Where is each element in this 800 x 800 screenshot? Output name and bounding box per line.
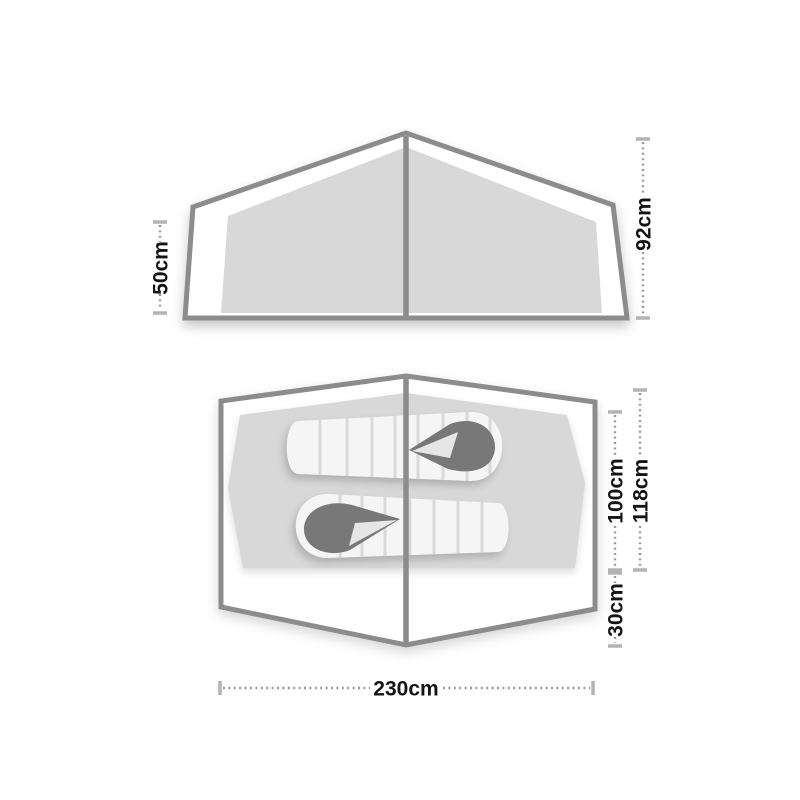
dimension-inner-depth: 100cm	[605, 412, 628, 570]
dimension-label-peak-height: 92cm	[633, 197, 656, 251]
dimension-side-height: 50cm	[150, 222, 173, 313]
dimension-peak-height: 92cm	[633, 139, 656, 318]
dimension-label-porch-depth: 30cm	[605, 583, 628, 637]
tent-dimension-diagram: 50cm 92cm	[0, 0, 800, 800]
dimension-label-inner-depth: 100cm	[605, 458, 628, 523]
dimension-label-total-depth: 118cm	[630, 459, 653, 523]
dimension-total-depth: 118cm	[630, 390, 653, 570]
side-elevation-view	[185, 133, 627, 318]
dimension-label-width: 230cm	[373, 678, 438, 701]
dimension-porch-depth: 30cm	[605, 573, 628, 646]
floor-plan-view	[221, 376, 595, 645]
tent-dimensions-page: 50cm 92cm	[0, 0, 800, 800]
dimension-label-side-height: 50cm	[150, 241, 173, 295]
tent-side-inner-panel	[221, 147, 602, 313]
dimension-width: 230cm	[220, 678, 593, 701]
